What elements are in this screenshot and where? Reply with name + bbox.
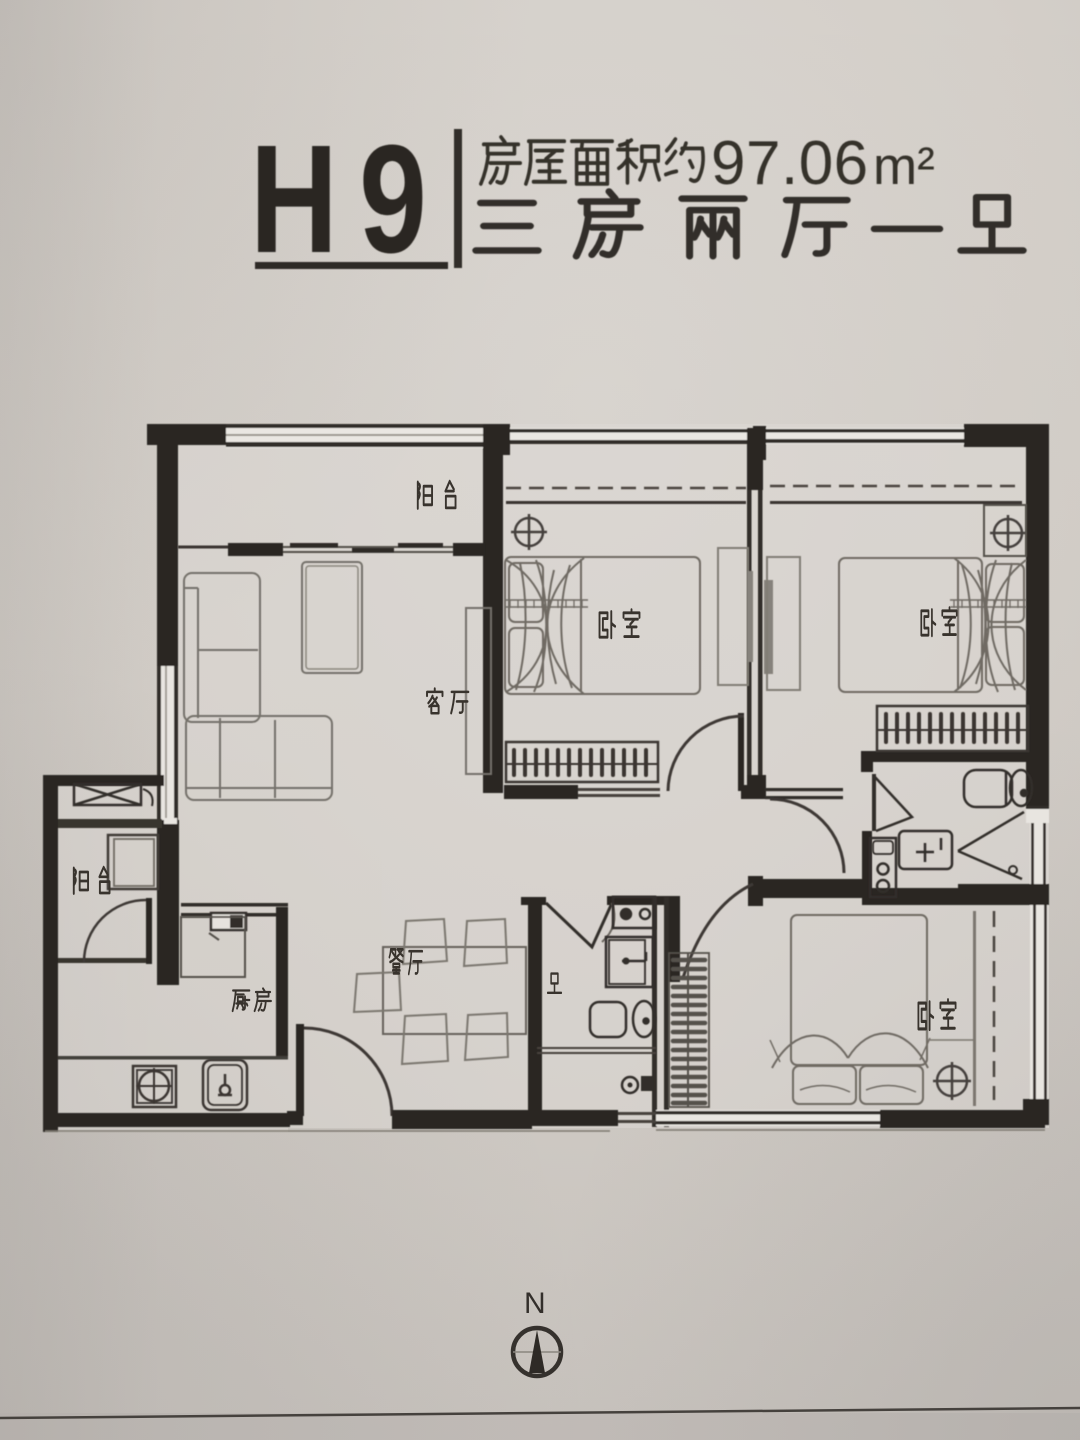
svg-text:N: N	[524, 1287, 546, 1320]
svg-text:H9: H9	[250, 113, 448, 285]
svg-text:97.06: 97.06	[711, 129, 869, 198]
svg-text:m²: m²	[873, 137, 935, 196]
